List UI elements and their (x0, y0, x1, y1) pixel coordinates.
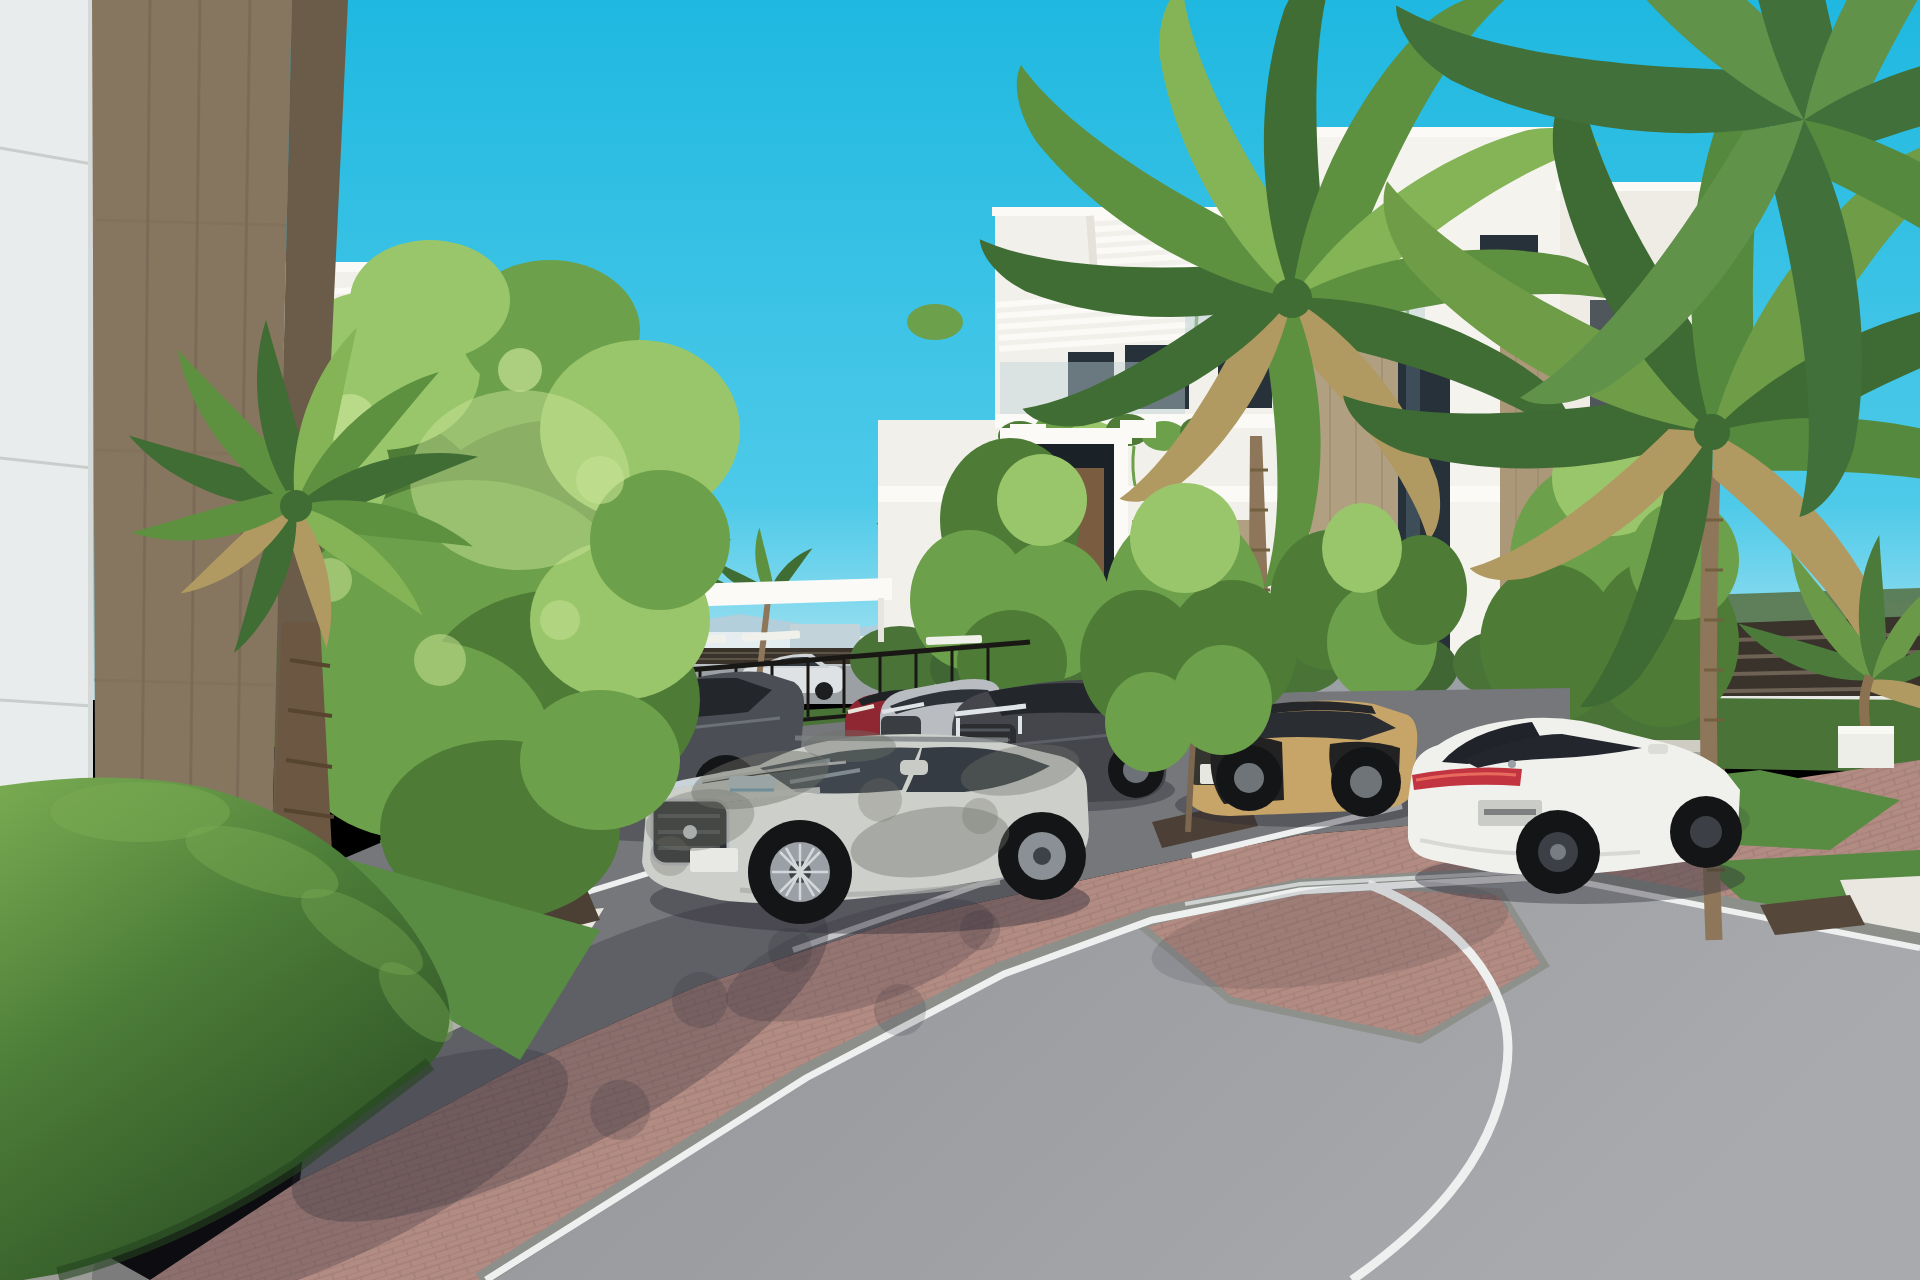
architectural-render: Photorealistic 3D architectural render o… (0, 0, 1920, 1280)
white-panel-wall (0, 0, 92, 810)
